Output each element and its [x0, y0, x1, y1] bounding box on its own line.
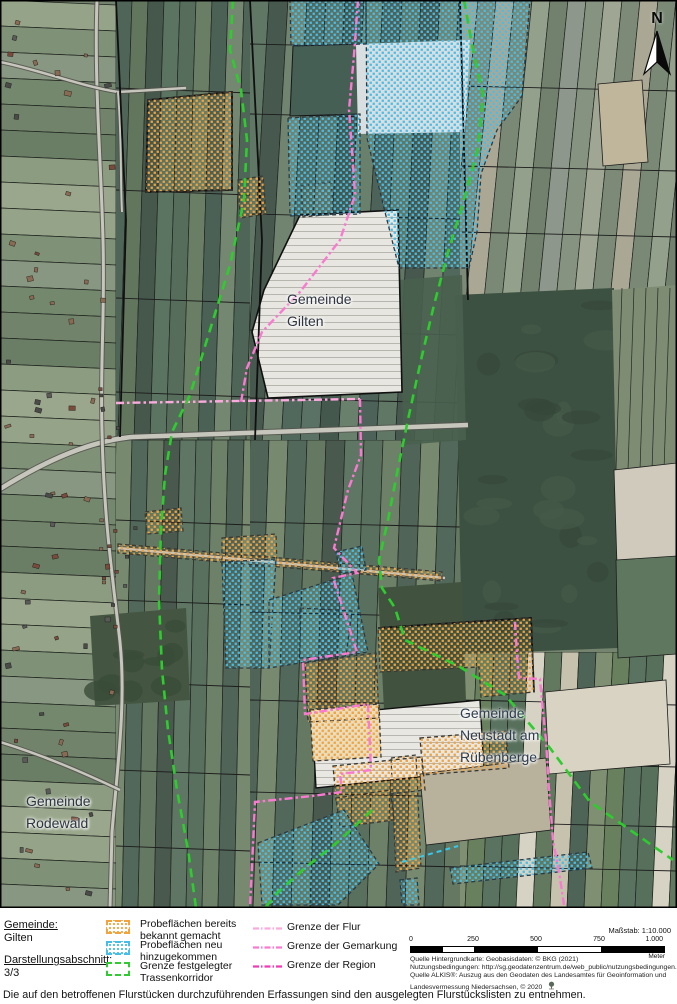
scale-bar-segments	[410, 946, 665, 953]
north-arrow-icon	[640, 28, 674, 78]
label-line: Gilten	[287, 310, 352, 332]
scale-ratio-label: Maßstab: 1:10.000	[608, 926, 671, 935]
legend-label: Probeflächen bereits	[140, 919, 236, 931]
sheet-info: Gemeinde: Gilten Darstellungsabschnitt: …	[4, 919, 112, 980]
label-line: Rübenberge	[460, 746, 539, 768]
map-sheet: Gemeinde Gilten Gemeinde Neustadt am Rüb…	[0, 0, 677, 1004]
map-label-gemeinde-rodewald: Gemeinde Rodewald	[26, 790, 91, 834]
map-canvas: Gemeinde Gilten Gemeinde Neustadt am Rüb…	[0, 0, 677, 908]
legend-label: Probeflächen neu	[140, 940, 222, 952]
footnote-text: Die auf den betroffenen Flurstücken durc…	[3, 989, 586, 1001]
blue-dots-swatch	[106, 941, 130, 955]
label-line: Gemeinde	[460, 702, 539, 724]
gemeinde-label: Gemeinde:	[4, 919, 112, 932]
dash-dot-line-sample	[253, 964, 283, 969]
darstellungsabschnitt-label: Darstellungsabschnitt:	[4, 954, 112, 967]
legend-item-grenze-flur: Grenze der Flur	[253, 921, 453, 935]
label-line: Gemeinde	[26, 790, 91, 812]
scale-tick: 1.000	[645, 936, 663, 943]
orange-dots-swatch	[106, 920, 130, 934]
green-outline-swatch	[106, 962, 130, 976]
legend-label: Grenze der Flur	[287, 921, 361, 933]
attribution-line: Quelle Hintergrundkarte: Geobasisdaten: …	[410, 956, 677, 964]
scale-tick: 500	[530, 936, 542, 943]
darstellungsabschnitt-value: 3/3	[4, 967, 112, 980]
scale-tick: 250	[467, 936, 479, 943]
map-label-gemeinde-neustadt: Gemeinde Neustadt am Rübenberge	[460, 702, 539, 768]
north-label: N	[640, 10, 674, 28]
north-indicator: N	[640, 10, 674, 83]
legend-label: Grenze der Region	[287, 959, 376, 971]
aerial-map	[0, 0, 677, 908]
dash-dot-line-sample	[253, 945, 283, 950]
attribution: Quelle Hintergrundkarte: Geobasisdaten: …	[410, 956, 677, 992]
legend-label: Grenze der Gemarkung	[287, 940, 397, 952]
attribution-line: Quelle ALKIS®: Auszug aus den Geodaten d…	[410, 972, 677, 980]
scale-tick: 0	[409, 936, 413, 943]
label-line: Neustadt am	[460, 724, 539, 746]
legend-label: Grenze festgelegter	[140, 961, 232, 973]
dash-dot-line-sample	[253, 926, 283, 931]
gemeinde-value: Gilten	[4, 932, 112, 945]
label-line: Gemeinde	[287, 288, 352, 310]
legend-panel: Gemeinde: Gilten Darstellungsabschnitt: …	[0, 908, 677, 990]
scale-tick: 750	[593, 936, 605, 943]
legend-label: Trassenkorridor	[140, 973, 232, 985]
map-label-gemeinde-gilten: Gemeinde Gilten	[287, 288, 352, 332]
label-line: Rodewald	[26, 812, 91, 834]
